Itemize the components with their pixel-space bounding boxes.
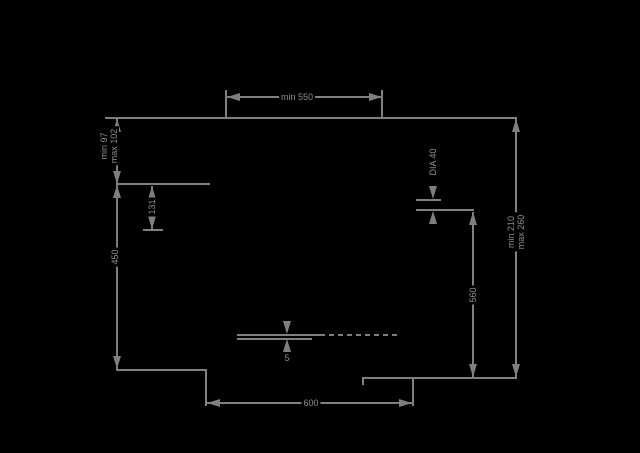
front-gap-arrow-up: [283, 339, 291, 352]
front-line-solid: [237, 334, 320, 336]
top-width-label: min 550: [279, 92, 315, 102]
left-height-arrow-top: [113, 185, 121, 198]
bottom-right-edge-tick: [362, 377, 364, 385]
left-upper-label-min: min 97: [99, 129, 109, 164]
bottom-width-arrow-left: [207, 399, 220, 407]
hole-diameter-label: DIA 40: [428, 146, 438, 177]
bottom-width-label: 600: [301, 398, 320, 408]
offset-end-tick: [143, 229, 163, 231]
front-gap-label: 5: [282, 353, 291, 363]
bottom-left-edge-line: [116, 369, 206, 371]
right-height-label: min 210 max 260: [506, 213, 526, 252]
front-line-dashed: [320, 334, 400, 336]
left-upper-label-max: max 102: [109, 129, 119, 164]
bottom-width-arrow-right: [399, 399, 412, 407]
bottom-right-edge-line: [363, 377, 517, 379]
hole-arrow-up: [429, 211, 437, 224]
bottom-dim-extension-right: [412, 377, 414, 406]
installation-diagram: min 550 min 97 max 102 131 450 DIA 40 56…: [0, 0, 640, 453]
top-width-arrow-left: [227, 93, 240, 101]
inner-height-arrow-top: [469, 212, 477, 225]
left-shelf-line: [116, 183, 210, 185]
hole-arrow-down: [429, 186, 437, 199]
left-height-arrow-bottom: [113, 356, 121, 369]
offset-arrow-bottom: [148, 216, 156, 229]
inner-height-label: 560: [468, 285, 478, 304]
inner-height-arrow-bottom: [469, 364, 477, 377]
left-upper-label: min 97 max 102: [99, 127, 119, 166]
left-upper-arrow-bottom: [113, 171, 121, 184]
front-gap-lower-line: [237, 338, 312, 340]
offset-label: 131: [147, 197, 157, 216]
left-height-dim-line: [116, 185, 118, 369]
right-height-label-min: min 210: [506, 215, 516, 250]
hole-upper-line: [416, 199, 441, 201]
right-height-label-max: max 260: [516, 215, 526, 250]
top-width-arrow-right: [369, 93, 382, 101]
right-height-arrow-bottom: [512, 364, 520, 377]
top-edge-line: [105, 117, 517, 119]
front-gap-arrow-down: [283, 321, 291, 334]
right-height-arrow-top: [512, 119, 520, 132]
left-height-label: 450: [110, 247, 120, 266]
hole-lower-line: [416, 209, 474, 211]
